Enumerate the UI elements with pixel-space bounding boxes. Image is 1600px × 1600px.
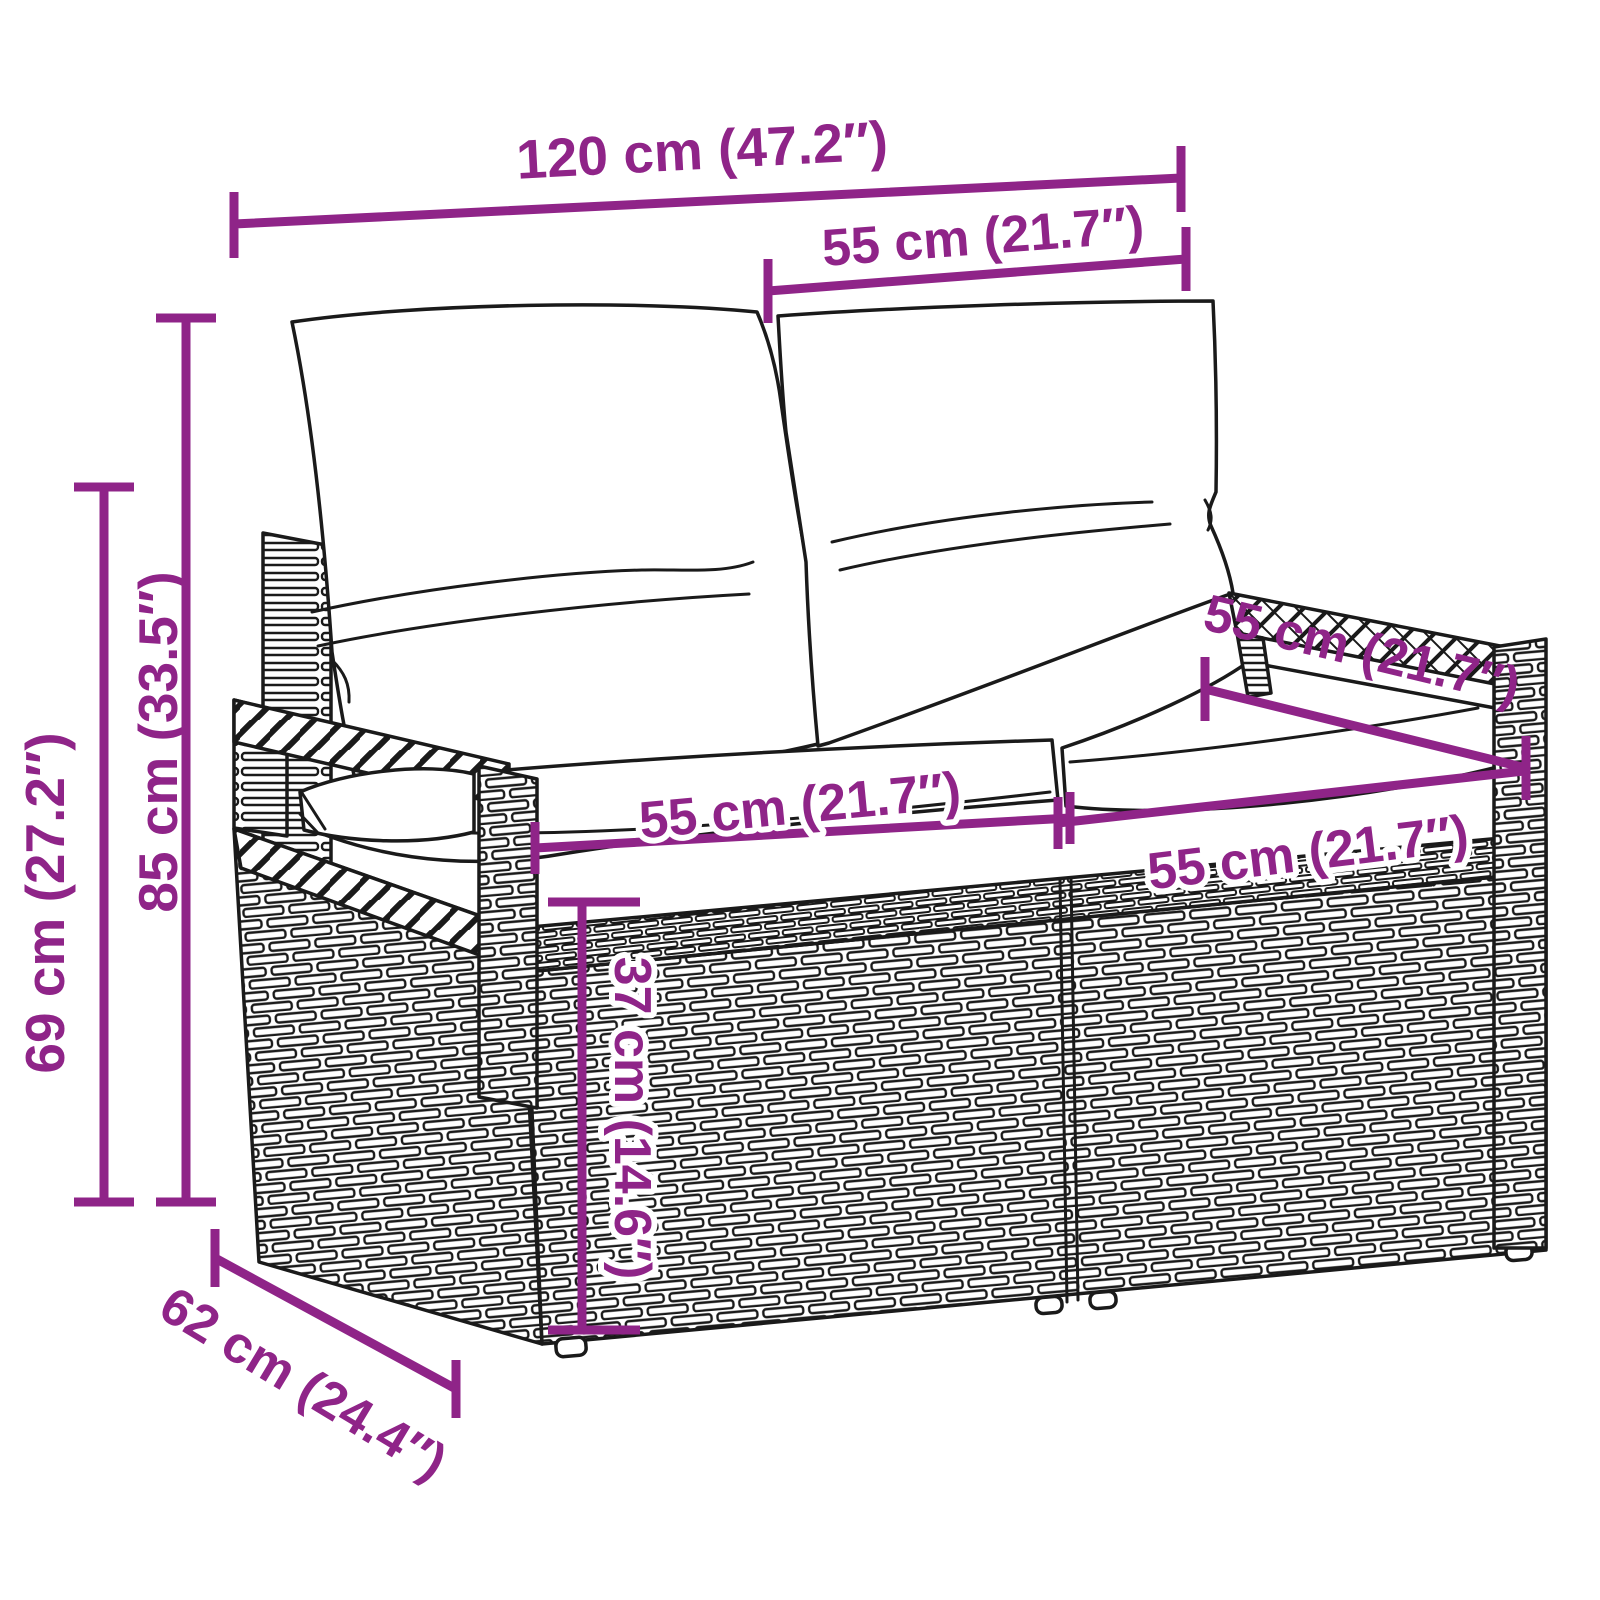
dim-frame-height: 69 cm (27.2″) (14, 487, 134, 1202)
dim-frame-height-label: 69 cm (27.2″) (14, 732, 76, 1073)
dimension-diagram-page: 120 cm (47.2″) 55 cm (21.7″) 85 cm (33.5… (0, 0, 1600, 1600)
base-foot (1035, 1296, 1062, 1314)
back-cushion-left (292, 305, 818, 802)
bench-dimension-diagram: 120 cm (47.2″) 55 cm (21.7″) 85 cm (33.5… (0, 0, 1600, 1600)
dim-overall-width-label: 120 cm (47.2″) (515, 109, 890, 190)
armrest-left-post (479, 766, 537, 1108)
base-foot (1089, 1291, 1116, 1309)
dim-total-height-label: 85 cm (33.5″) (127, 571, 189, 912)
dim-total-height: 85 cm (33.5″) (127, 318, 216, 1202)
armrest-right-post (1494, 639, 1546, 1248)
base-foot (555, 1337, 586, 1358)
dim-seat-height-label: 37 cm (14.6″) (603, 957, 661, 1280)
